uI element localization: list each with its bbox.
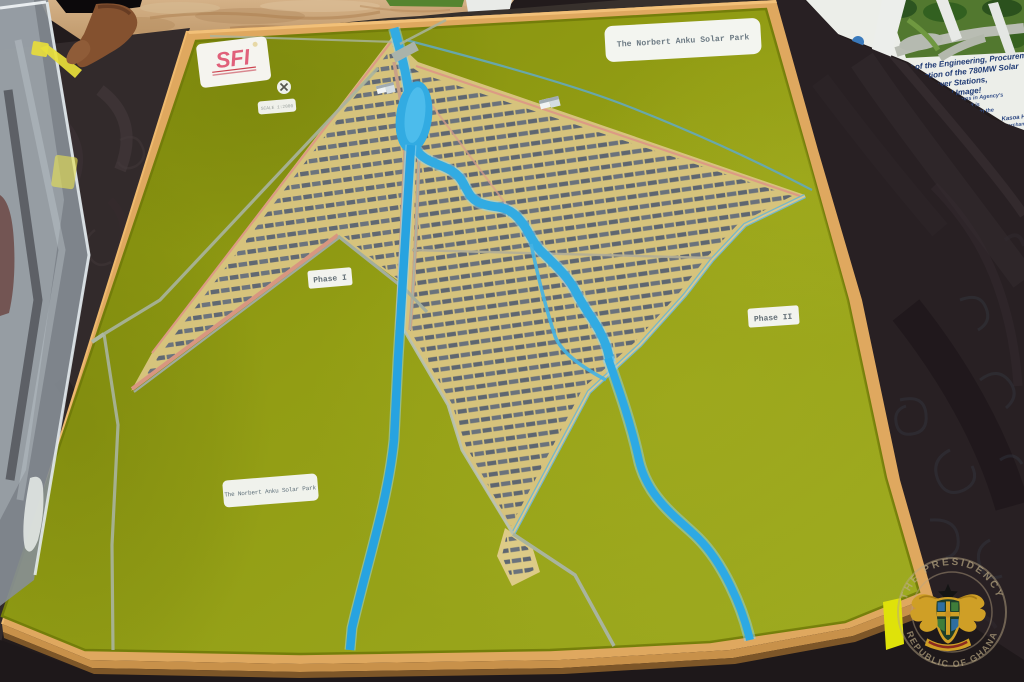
svg-text:SFI: SFI (214, 44, 252, 73)
